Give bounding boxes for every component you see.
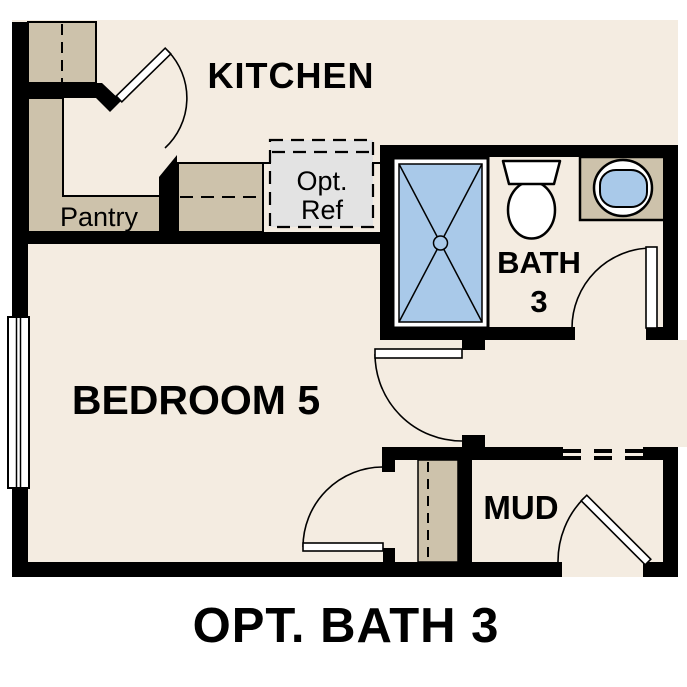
mud-closet-bench [418,460,458,562]
wall-mud-top [382,447,563,460]
wall-hall-door-head [462,327,485,350]
floor-hall-notch [678,340,687,447]
label-kitchen: KITCHEN [208,55,375,96]
toilet-tank [503,161,560,184]
shower-drain [434,236,448,250]
bedroom-door-leaf [303,543,383,551]
label-bath-line1: BATH [497,245,581,280]
bath-sink [594,160,652,216]
label-pantry: Pantry [60,202,139,232]
wall-bath-top [380,145,678,157]
wall-bottom-left [12,562,562,577]
floor-plan: KITCHEN Pantry Opt. Ref BATH 3 BEDROOM 5… [0,0,687,687]
label-mud: MUD [483,489,558,526]
wall-mud-right [663,447,678,577]
wall-bedroom-stub [382,447,395,472]
wall-kitchen-bedroom [12,232,395,244]
wall-bottom-right [643,562,678,577]
label-opt-ref-line1: Opt. [296,166,347,196]
wall-bedroom-door-stub [383,548,395,562]
bath-door-leaf [646,247,657,328]
label-opt-ref-line2: Ref [301,195,344,225]
toilet-bowl [508,182,555,239]
shower [393,158,488,328]
toilet [503,161,560,239]
plan-title: OPT. BATH 3 [193,599,500,653]
sink-basin [600,170,647,207]
wall-bath-right [663,145,678,340]
label-bedroom: BEDROOM 5 [72,377,320,423]
wall-left-upper [12,22,28,317]
label-bath-line2: 3 [530,284,547,319]
hall-door-leaf [375,349,462,358]
wall-closet-right [458,460,472,562]
wall-bath-door-jamb [646,327,678,340]
bedroom-window [8,317,29,488]
